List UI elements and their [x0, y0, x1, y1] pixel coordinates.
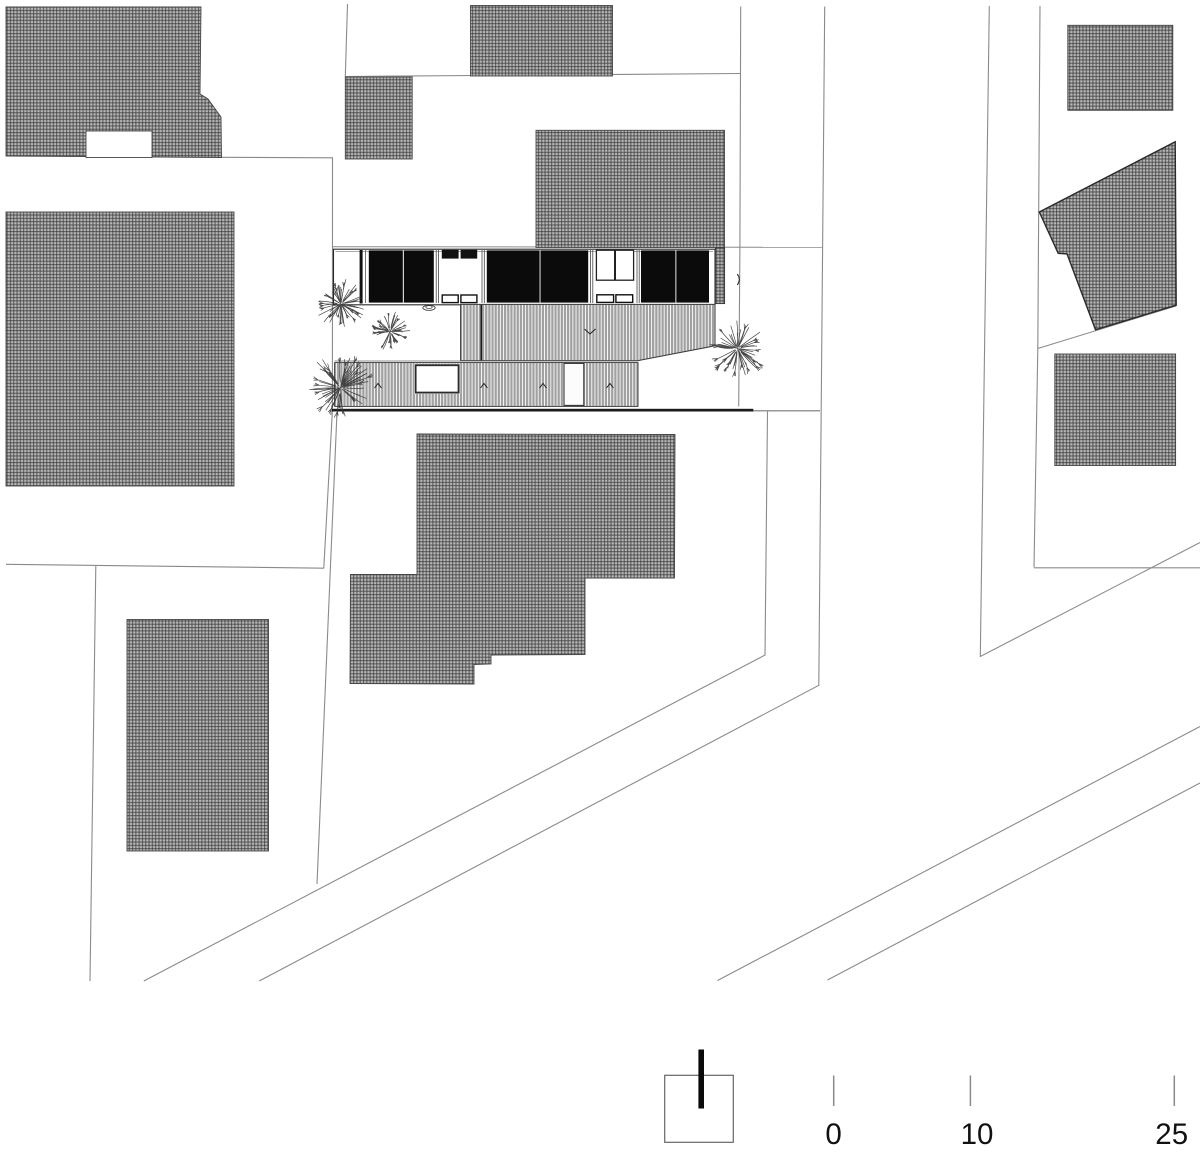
svg-text:0: 0	[825, 1118, 841, 1151]
svg-text:10: 10	[961, 1118, 994, 1151]
svg-text:25: 25	[1155, 1118, 1188, 1151]
